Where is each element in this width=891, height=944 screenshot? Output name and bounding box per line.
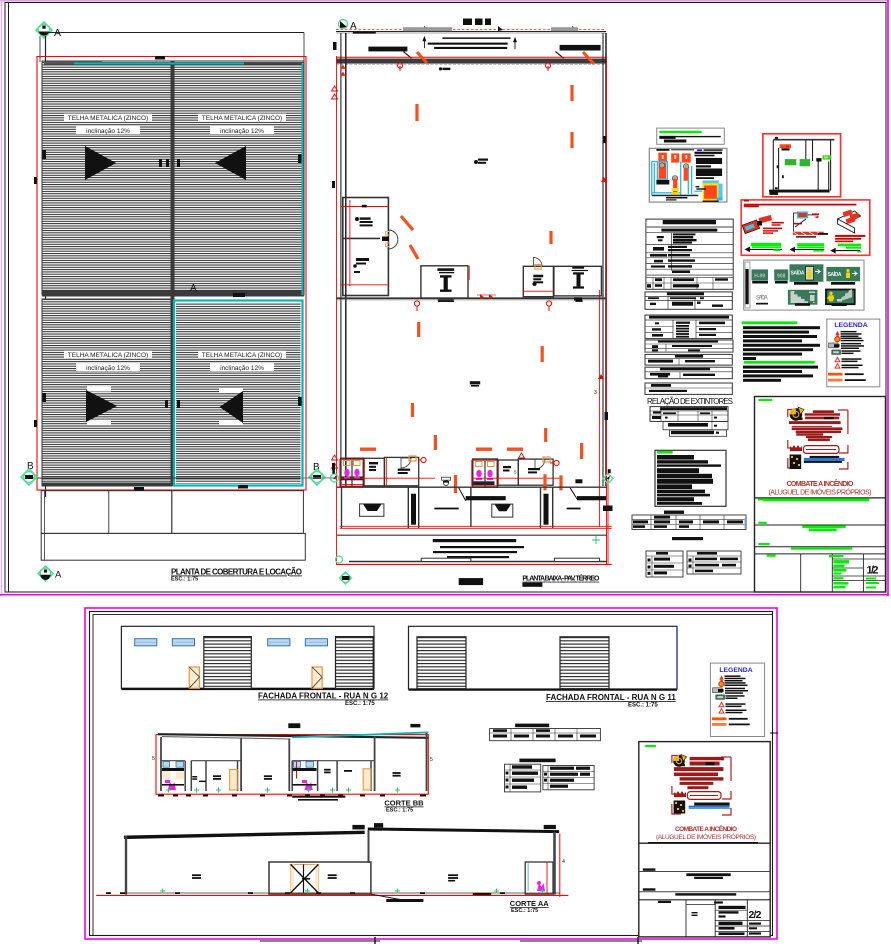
svg-text:H-99: H-99	[754, 274, 765, 280]
svg-text:2/2: 2/2	[749, 909, 762, 921]
svg-text:A: A	[55, 570, 62, 581]
svg-text:ESC.: 1:75: ESC.: 1:75	[345, 701, 375, 707]
svg-text:ESC.: 1:75: ESC.: 1:75	[171, 577, 198, 583]
svg-text:(ALUGUEL DE IMÓVEIS PRÓPRIOS): (ALUGUEL DE IMÓVEIS PRÓPRIOS)	[769, 488, 872, 497]
svg-text:LEGENDA: LEGENDA	[719, 667, 752, 674]
svg-text:COMBATE A INCÊNDIO: COMBATE A INCÊNDIO	[787, 479, 855, 488]
svg-text:4: 4	[562, 859, 565, 865]
svg-text:ESC.: 1:75: ESC.: 1:75	[386, 808, 413, 814]
svg-text:A: A	[350, 21, 357, 32]
svg-text:TELHA METALICA (ZINCO): TELHA METALICA (ZINCO)	[68, 115, 148, 122]
svg-text:TELHA METALICA (ZINCO): TELHA METALICA (ZINCO)	[202, 115, 282, 122]
svg-text:ESC.: 1:75: ESC.: 1:75	[511, 908, 538, 914]
svg-text:inclinação 12%: inclinação 12%	[220, 365, 264, 372]
svg-text:SAÍDA: SAÍDA	[756, 294, 769, 302]
svg-text:5: 5	[430, 757, 433, 763]
svg-text:CORTE AA: CORTE AA	[510, 899, 549, 908]
svg-text:COMBATE A INCÊNDIO: COMBATE A INCÊNDIO	[675, 824, 737, 833]
svg-text:5: 5	[152, 756, 155, 762]
svg-text:inclinação 12%: inclinação 12%	[86, 365, 130, 372]
svg-text:FACHADA FRONTAL - RUA N G 11: FACHADA FRONTAL - RUA N G 11	[546, 693, 676, 702]
svg-text:RELAÇÃO DE EXTINTORES: RELAÇÃO DE EXTINTORES	[647, 397, 733, 406]
svg-text:TELHA METALICA (ZINCO): TELHA METALICA (ZINCO)	[202, 352, 282, 359]
svg-text:A: A	[190, 283, 197, 294]
svg-text:3: 3	[594, 390, 597, 396]
svg-text:SAÍDA: SAÍDA	[791, 269, 805, 277]
svg-text:PLANTA DE COBERTURA E LOCAÇÃO: PLANTA DE COBERTURA E LOCAÇÃO	[171, 568, 302, 577]
svg-text:908: 908	[777, 274, 786, 280]
svg-text:TELHA METALICA (ZINCO): TELHA METALICA (ZINCO)	[68, 352, 148, 359]
svg-text:inclinação 12%: inclinação 12%	[86, 128, 130, 135]
svg-text:SAÍDA: SAÍDA	[828, 270, 842, 278]
svg-text:ESC.: 1:75: ESC.: 1:75	[628, 703, 658, 709]
svg-text:FACHADA FRONTAL - RUA N G 12: FACHADA FRONTAL - RUA N G 12	[258, 692, 389, 701]
svg-text:(ALUGUEL DE IMÓVEIS PRÓPRIOS): (ALUGUEL DE IMÓVEIS PRÓPRIOS)	[656, 832, 756, 841]
svg-text:1/2: 1/2	[867, 565, 879, 577]
svg-text:inclinação 12%: inclinação 12%	[220, 128, 264, 135]
svg-text:LEGENDA: LEGENDA	[834, 322, 867, 329]
svg-text:CORTE BB: CORTE BB	[384, 799, 424, 808]
svg-text:PLANTA BAIXA - PAV. TÉRREO: PLANTA BAIXA - PAV. TÉRREO	[522, 574, 600, 583]
